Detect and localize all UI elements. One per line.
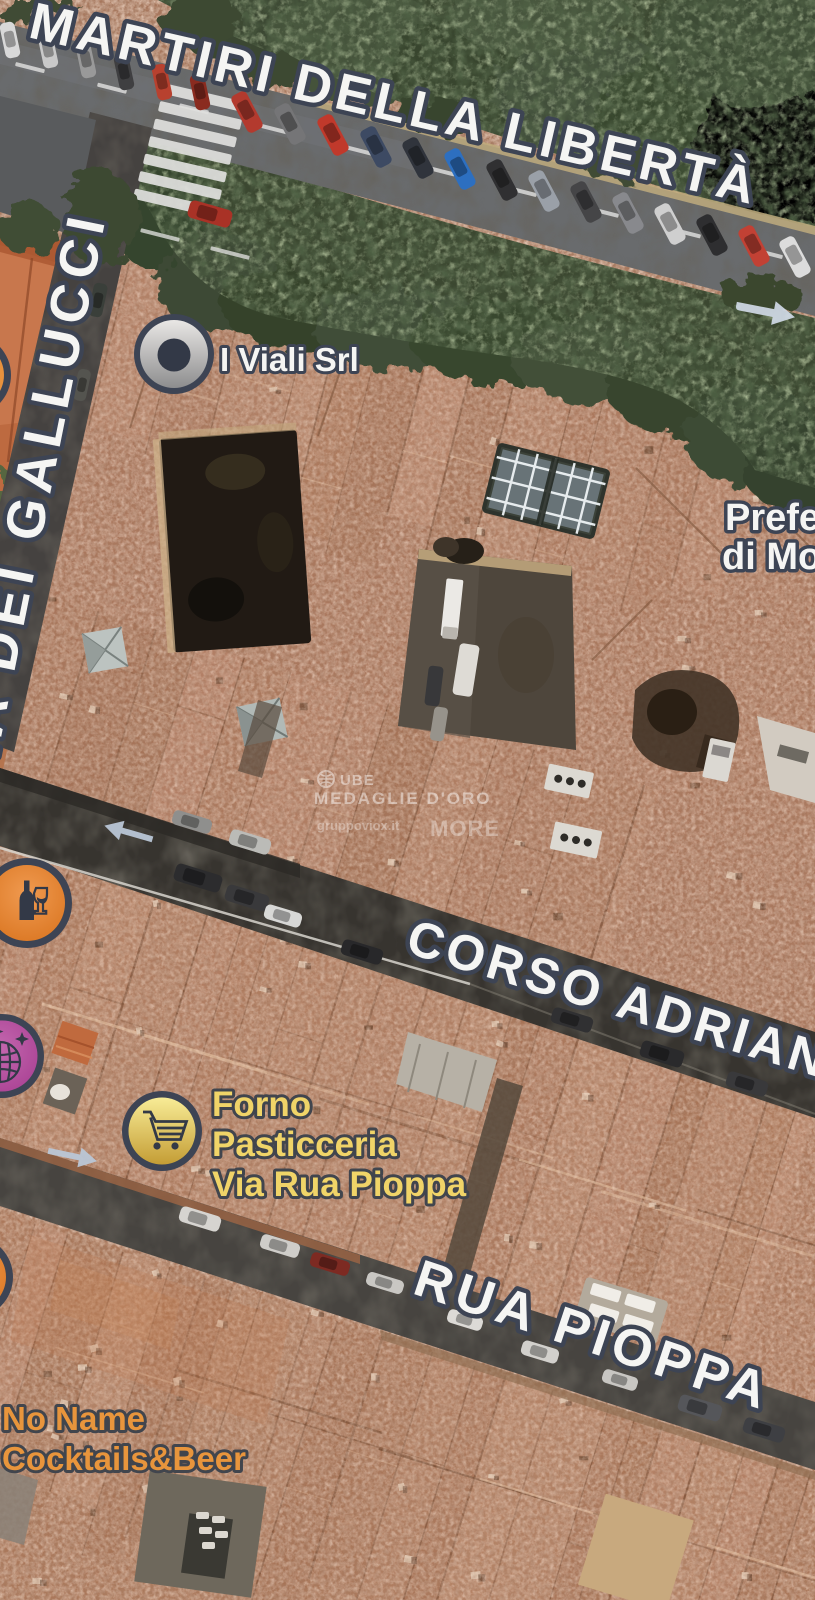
svg-text:MORE: MORE	[430, 816, 500, 841]
svg-text:Prefe: Prefe	[725, 497, 815, 539]
svg-text:Via Rua Pioppa: Via Rua Pioppa	[212, 1165, 467, 1204]
svg-text:Pasticceria: Pasticceria	[212, 1125, 397, 1164]
svg-text:Forno: Forno	[212, 1085, 311, 1124]
svg-text:MEDAGLIE D'ORO: MEDAGLIE D'ORO	[314, 789, 492, 808]
svg-text:di Mo: di Mo	[722, 536, 815, 578]
svg-text:I Viali Srl: I Viali Srl	[220, 341, 359, 378]
svg-text:UBE: UBE	[340, 772, 375, 789]
svg-text:gruppoviox.it: gruppoviox.it	[317, 818, 400, 833]
svg-text:No Name: No Name	[2, 1400, 145, 1437]
svg-text:Cocktails&Beer: Cocktails&Beer	[2, 1440, 246, 1477]
